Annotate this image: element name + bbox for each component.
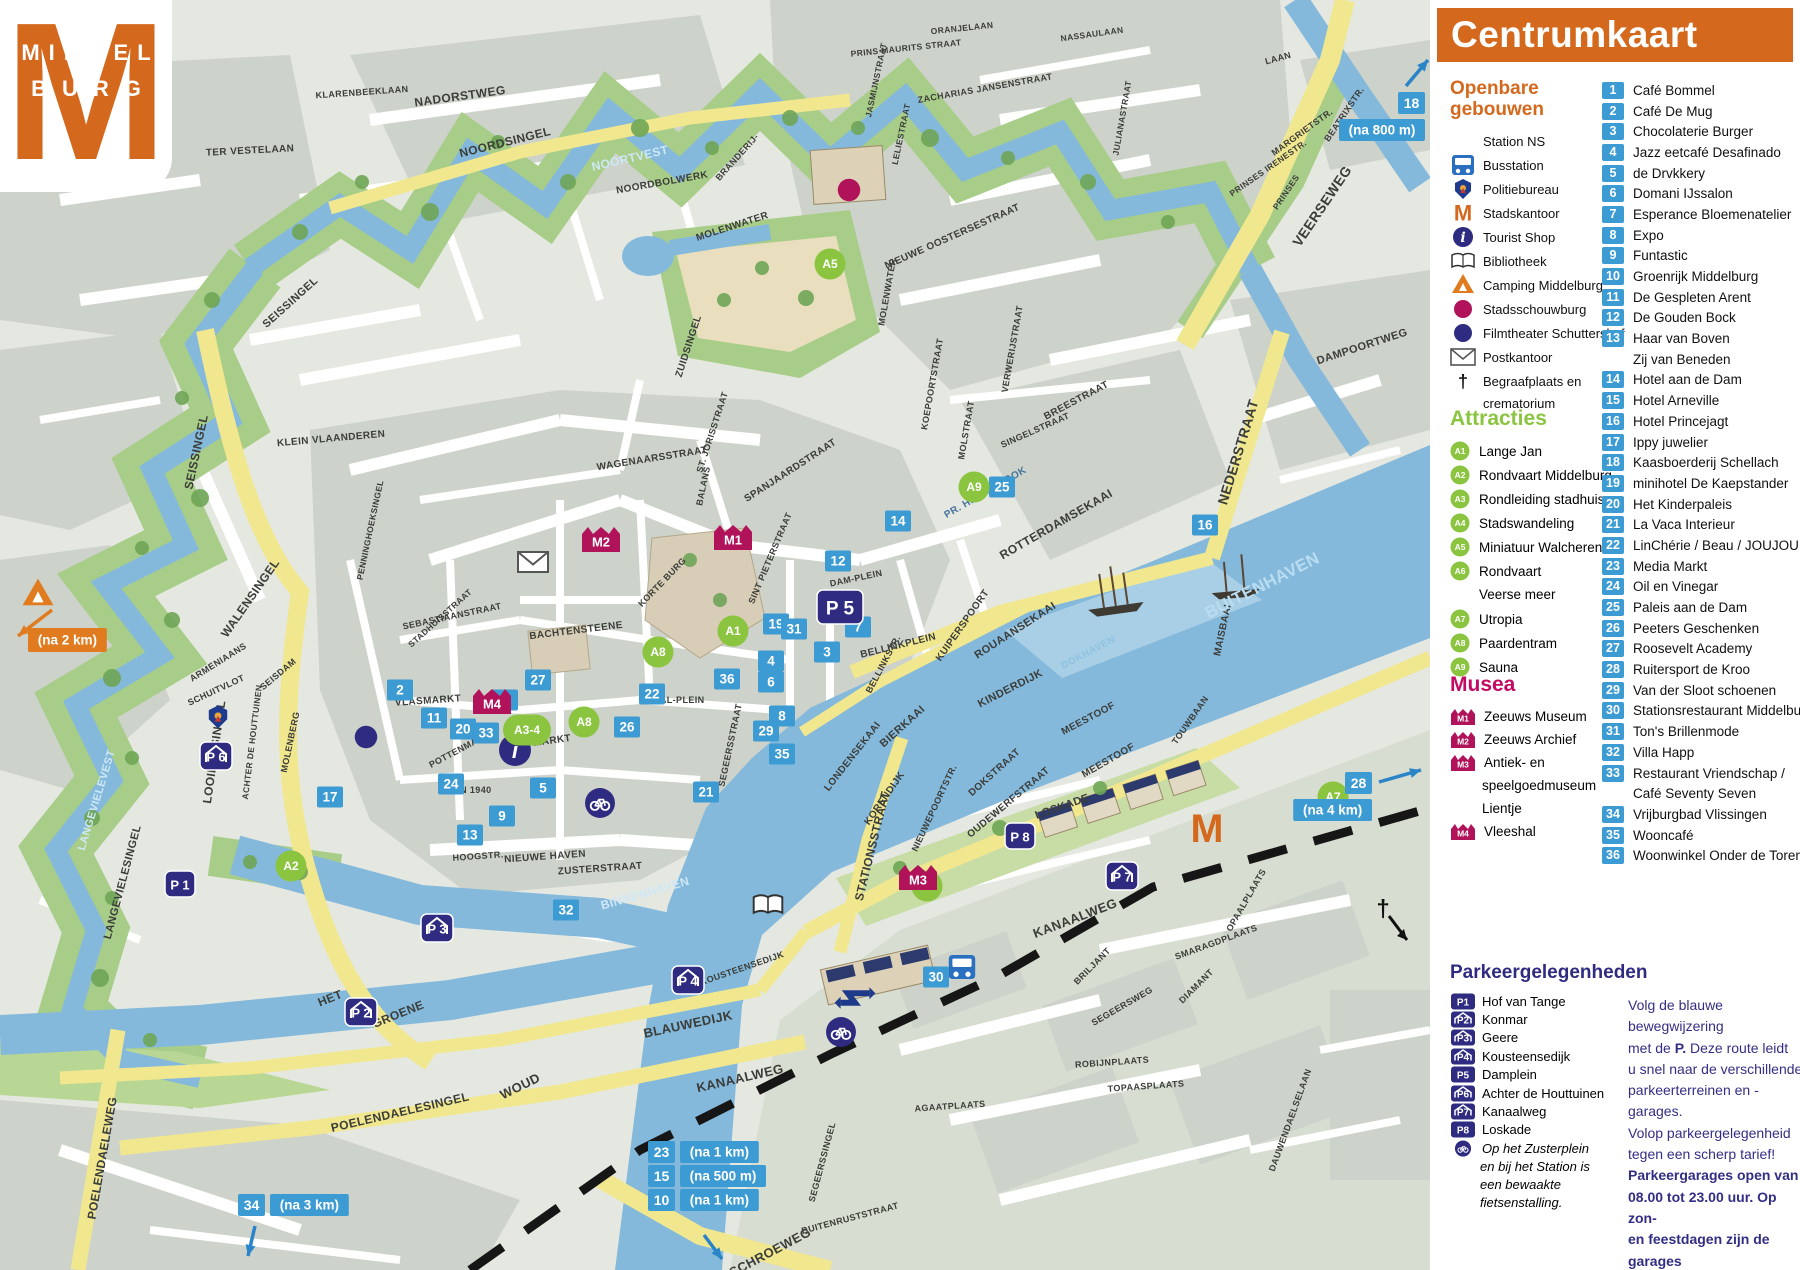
svg-text:A8: A8 [1455, 638, 1466, 648]
attraction-badge-icon: A1 [1450, 441, 1470, 461]
svg-text:A7: A7 [1455, 614, 1466, 624]
museum-label: Vleeshal [1484, 824, 1536, 839]
map-number-marker-29: 29 [753, 721, 779, 742]
directory-item-6: 6Domani IJssalon [1602, 183, 1800, 204]
museum-label: Zeeuws Museum [1484, 709, 1587, 724]
directory-label: Ippy juwelier [1633, 435, 1708, 450]
directory-label: Woonwinkel Onder de Toren [1633, 848, 1800, 863]
museums-list: M1Zeeuws MuseumM2Zeeuws ArchiefM3Antiek-… [1450, 705, 1596, 843]
parking-badge-icon: P7 [1450, 1103, 1476, 1120]
tourist-info-icon: i [1450, 225, 1476, 249]
map-number-marker-12: 12 [825, 551, 851, 572]
attraction-label: Lange Jan [1479, 444, 1542, 459]
museum-label: Zeeuws Archief [1484, 732, 1576, 747]
map-envelope [518, 552, 548, 572]
svg-text:35: 35 [774, 747, 790, 762]
centrumkaart-page: NADORSTWEGNOORDSINGELTER VESTELAANKLAREN… [0, 0, 1800, 1270]
museum-badge-icon: M2 [1450, 731, 1476, 749]
map-number-marker-16: 16 [1192, 515, 1218, 536]
attraction-label: Rondvaart [1479, 564, 1541, 579]
directory-number-badge: 27 [1602, 640, 1624, 657]
svg-text:12: 12 [830, 554, 845, 569]
attractions-section: Attracties A1Lange JanA2Rondvaart Middel… [1450, 408, 1612, 679]
directory-number-badge: 36 [1602, 847, 1624, 864]
parking-info-line: 08.00 tot 23.00 uur. Op zon- [1628, 1187, 1800, 1230]
museum-label: Antiek- en [1484, 755, 1545, 770]
directory-item-28: 28Ruitersport de Kroo [1602, 659, 1800, 680]
museums-section: Musea M1Zeeuws MuseumM2Zeeuws ArchiefM3A… [1450, 674, 1596, 843]
parking-info-line: Volop parkeergelegenheid [1628, 1123, 1800, 1144]
svg-text:27: 27 [530, 673, 545, 688]
directory-item-1: 1Café Bommel [1602, 80, 1800, 101]
map-attraction-marker-A3-4: A3-4 [503, 715, 551, 746]
svg-text:16: 16 [1197, 518, 1213, 533]
parking-label: Konmar [1482, 1012, 1528, 1027]
svg-text:25: 25 [994, 480, 1010, 495]
attraction-item-a6: A6Rondvaart [1450, 559, 1612, 583]
parking-label: Hof van Tange [1482, 994, 1566, 1009]
film-dot-icon [1450, 321, 1476, 345]
map-city-m: M [1191, 807, 1224, 851]
svg-text:P 2: P 2 [351, 1006, 370, 1021]
map-number-marker-20: 20 [450, 719, 476, 740]
directory-item-21: 21La Vaca Interieur [1602, 514, 1800, 535]
map-number-marker-13: 13 [457, 825, 483, 846]
svg-text:P 1: P 1 [170, 878, 189, 893]
svg-text:4: 4 [767, 654, 775, 669]
directory-number-badge: 6 [1602, 185, 1624, 202]
directory-item-3: 3Chocolaterie Burger [1602, 121, 1800, 142]
directory-item-31: 31Ton's Brillenmode [1602, 721, 1800, 742]
directory-number-badge: 34 [1602, 806, 1624, 823]
directory-item-12: 12De Gouden Bock [1602, 308, 1800, 329]
directory-number-badge: 2 [1602, 103, 1624, 120]
directory-label: De Gespleten Arent [1633, 290, 1751, 305]
directory-number-badge: 14 [1602, 371, 1624, 388]
parking-label: Damplein [1482, 1067, 1537, 1082]
svg-text:A9: A9 [1455, 662, 1466, 672]
map-title: Centrumkaart [1437, 8, 1793, 62]
directory-label: Groenrijk Middelburg [1633, 269, 1758, 284]
svg-text:31: 31 [786, 622, 802, 637]
directory-item-9: 9Funtastic [1602, 246, 1800, 267]
directory-label: Restaurant Vriendschap / [1633, 766, 1785, 781]
map-attraction-marker-A8: A8 [569, 707, 600, 738]
svg-text:A1: A1 [1455, 446, 1466, 456]
directory-item-11: 11De Gespleten Arent [1602, 287, 1800, 308]
svg-text:6: 6 [767, 675, 775, 690]
legend-label: Stadsschouwburg [1483, 302, 1586, 317]
tourist-info-icon: i [1453, 227, 1473, 247]
legend-item-police: Politiebureau [1450, 177, 1602, 201]
police-icon [1450, 177, 1476, 201]
directory-label: Kaasboerderij Schellach [1633, 455, 1779, 470]
directory-item-34: 34Vrijburgbad Vlissingen [1602, 804, 1800, 825]
svg-text:23: 23 [654, 1144, 670, 1160]
book-icon [1452, 254, 1474, 268]
map-number-marker-22: 22 [639, 684, 665, 705]
map-museum-marker-M1: M1 [714, 525, 752, 550]
svg-text:A2: A2 [1455, 470, 1466, 480]
attraction-item-a2: A2Rondvaart Middelburg [1450, 463, 1612, 487]
directory-number-badge: 26 [1602, 620, 1624, 637]
directory-label: Funtastic [1633, 248, 1688, 263]
bus-icon [1450, 153, 1476, 177]
parking-info-line: Parkeergarages open van [1628, 1165, 1800, 1186]
directory-label: Hotel Arneville [1633, 393, 1719, 408]
directory-number-badge: 7 [1602, 206, 1624, 223]
map-number-marker-9: 9 [489, 806, 515, 827]
map-number-marker-5: 5 [530, 778, 556, 799]
public-buildings-heading: Openbare gebouwen [1450, 78, 1602, 120]
map-attraction-marker-A1: A1 [718, 616, 749, 647]
map-parking-marker-P8: P 8 [1005, 823, 1035, 849]
museum-badge-icon: M3 [1450, 754, 1476, 772]
svg-text:A1: A1 [725, 624, 741, 638]
attraction-label: Miniatuur Walcheren [1479, 540, 1602, 555]
directory-label-cont: Zij van Beneden [1633, 352, 1731, 367]
map-number-marker-30: 30 [923, 967, 949, 988]
directory-label: Chocolaterie Burger [1633, 124, 1753, 139]
directory-list: 1Café Bommel2Café De Mug3Chocolaterie Bu… [1602, 80, 1800, 866]
parking-label: Kousteensedijk [1482, 1049, 1570, 1064]
parking-info-line: met de P. Deze route leidt [1628, 1038, 1800, 1059]
map-parking-marker-P2: P 2 [345, 998, 377, 1026]
parking-badge-icon: P5 [1450, 1066, 1476, 1083]
legend-label: Station NS [1483, 134, 1545, 149]
map-parking-marker-P4: P 4 [672, 966, 704, 994]
museum-badge-icon: M4 [1450, 823, 1476, 841]
directory-item-5: 5de Drvkkery [1602, 163, 1800, 184]
svg-text:34: 34 [244, 1197, 260, 1213]
svg-text:22: 22 [644, 687, 659, 702]
legend-label: Begraafplaats en [1483, 374, 1581, 389]
directory-number-badge: 19 [1602, 475, 1624, 492]
directory-number-badge: 30 [1602, 702, 1624, 719]
city-m-icon: M [1191, 807, 1224, 851]
legend-label: Postkantoor [1483, 350, 1552, 365]
svg-text:9: 9 [498, 809, 506, 824]
svg-text:A3: A3 [1455, 494, 1466, 504]
directory-label: La Vaca Interieur [1633, 517, 1735, 532]
parking-badge-icon: P6 [1450, 1085, 1476, 1102]
museum-badge-icon: M1 [1450, 708, 1476, 726]
svg-text:(na 800 m): (na 800 m) [1349, 123, 1416, 138]
svg-text:M: M [1454, 201, 1472, 225]
map-number-marker-4: 4 [758, 651, 784, 672]
map-parking-marker-P7: P 7 [1106, 862, 1138, 890]
svg-text:P5: P5 [1457, 1071, 1470, 1082]
svg-text:13: 13 [462, 828, 478, 843]
directory-item-33-cont: Café Seventy Seven [1602, 783, 1800, 804]
directory-item-36: 36Woonwinkel Onder de Toren [1602, 845, 1800, 866]
map-number-marker-17: 17 [317, 787, 343, 808]
map-book [754, 895, 783, 913]
svg-text:30: 30 [928, 970, 943, 985]
directory-item-27: 27Roosevelt Academy [1602, 639, 1800, 660]
parking-info-line: Volg de blauwe bewegwijzering [1628, 995, 1800, 1038]
svg-text:M3: M3 [1457, 759, 1469, 769]
police-icon [1455, 179, 1471, 199]
parking-info-text: Volg de blauwe bewegwijzeringmet de P. D… [1628, 995, 1800, 1270]
svg-text:M1: M1 [724, 533, 742, 548]
directory-item-22: 22LinChérie / Beau / JOUJOU [1602, 535, 1800, 556]
museum-label-cont: Lientje [1482, 797, 1596, 820]
legend-item-theater-dot: Stadsschouwburg [1450, 297, 1602, 321]
svg-text:17: 17 [322, 790, 337, 805]
map-number-marker-33: 33 [473, 723, 499, 744]
directory-item-18: 18Kaasboerderij Schellach [1602, 452, 1800, 473]
directory-item-17: 17Ippy juwelier [1602, 432, 1800, 453]
directory-number-badge: 21 [1602, 516, 1624, 533]
legend-item-grave: †Begraafplaats en [1450, 369, 1602, 393]
directory-label: Peeters Geschenken [1633, 621, 1759, 636]
svg-text:11: 11 [427, 711, 442, 726]
map-attraction-marker-A9: A9 [959, 472, 990, 503]
directory-number-badge: 8 [1602, 227, 1624, 244]
directory-item-23: 23Media Markt [1602, 556, 1800, 577]
directory-item-33: 33Restaurant Vriendschap / [1602, 763, 1800, 784]
directory-item-10: 10Groenrijk Middelburg [1602, 266, 1800, 287]
svg-text:A2: A2 [283, 859, 299, 873]
map-number-marker-6: 6 [758, 672, 784, 693]
svg-text:A6: A6 [1455, 566, 1466, 576]
envelope-icon [1451, 349, 1475, 365]
map-museum-marker-M4: M4 [473, 689, 511, 714]
svg-text:P4: P4 [1457, 1052, 1470, 1063]
svg-text:(na 3 km): (na 3 km) [280, 1198, 339, 1213]
ns-icon [1450, 129, 1476, 153]
svg-text:18: 18 [1404, 95, 1420, 111]
directory-item-13-cont: Zij van Beneden [1602, 349, 1800, 370]
museums-heading: Musea [1450, 674, 1596, 695]
map-parking-marker-P3: P 3 [421, 914, 453, 942]
directory-label: Ton's Brillenmode [1633, 724, 1739, 739]
directory-number-badge: 22 [1602, 537, 1624, 554]
theater-dot-icon [838, 179, 861, 202]
directory-number-badge: 5 [1602, 165, 1624, 182]
directory-number-badge: 11 [1602, 289, 1624, 306]
map-number-marker-24: 24 [438, 774, 464, 795]
directory-number-badge: 28 [1602, 661, 1624, 678]
directory-item-8: 8Expo [1602, 225, 1800, 246]
svg-text:P8: P8 [1457, 1126, 1470, 1137]
svg-text:A3-4: A3-4 [514, 723, 540, 737]
legend-item-book: Bibliotheek [1450, 249, 1602, 273]
directory-item-15: 15Hotel Arneville [1602, 390, 1800, 411]
directory-label: Ruitersport de Kroo [1633, 662, 1750, 677]
directory-item-29: 29Van der Sloot schoenen [1602, 680, 1800, 701]
svg-text:P 4: P 4 [678, 974, 698, 989]
envelope-icon [518, 552, 548, 572]
directory-label: Hotel Princejagt [1633, 414, 1728, 429]
attraction-item-a4: A4Stadswandeling [1450, 511, 1612, 535]
svg-text:P 6: P 6 [206, 750, 225, 765]
legend-item-envelope: Postkantoor [1450, 345, 1602, 369]
camping-icon [1450, 273, 1476, 297]
theater-dot-icon [1450, 297, 1476, 321]
attraction-badge-icon: A4 [1450, 513, 1470, 533]
directory-number-badge: 33 [1602, 765, 1624, 782]
map-number-marker-11: 11 [421, 708, 447, 729]
directory-label: De Gouden Bock [1633, 310, 1736, 325]
svg-text:33: 33 [478, 726, 494, 741]
museum-item-m2: M2Zeeuws Archief [1450, 728, 1596, 751]
attraction-badge-icon: A6 [1450, 561, 1470, 581]
map-number-marker-21: 21 [693, 782, 719, 803]
directory-label: Villa Happ [1633, 745, 1694, 760]
directory-label: Van der Sloot schoenen [1633, 683, 1776, 698]
directory-number-spacer [1602, 351, 1624, 368]
directory-number-badge: 32 [1602, 744, 1624, 761]
map-theater-dot [838, 179, 861, 202]
svg-text:14: 14 [890, 514, 906, 529]
attraction-item-a8: A8Paardentram [1450, 631, 1612, 655]
svg-text:5: 5 [539, 781, 547, 796]
directory-label: Media Markt [1633, 559, 1707, 574]
directory-number-badge: 16 [1602, 413, 1624, 430]
attractions-list: A1Lange JanA2Rondvaart MiddelburgA3Rondl… [1450, 439, 1612, 679]
legend-panel: Centrumkaart Openbare gebouwen Station N… [1430, 0, 1800, 1270]
distance-badge-23: 23(na 1 km) [648, 1141, 759, 1163]
public-buildings-list: Station NSBusstationPolitiebureauMStadsk… [1450, 129, 1602, 415]
parking-info-line: u snel naar de verschillende [1628, 1059, 1800, 1080]
svg-text:†: † [1458, 371, 1468, 391]
legend-label: Bibliotheek [1483, 254, 1547, 269]
map-number-marker-27: 27 [525, 670, 551, 691]
directory-item-2: 2Café De Mug [1602, 101, 1800, 122]
map-number-marker-31: 31 [781, 619, 807, 640]
directory-number-badge: 3 [1602, 123, 1624, 140]
directory-label: de Drvkkery [1633, 166, 1705, 181]
map-museum-marker-M2: M2 [582, 527, 620, 552]
svg-text:3: 3 [823, 645, 831, 660]
map-attraction-marker-A2: A2 [276, 851, 307, 882]
directory-label: Het Kinderpaleis [1633, 497, 1732, 512]
directory-number-badge: 1 [1602, 82, 1624, 99]
directory-number-badge: 35 [1602, 827, 1624, 844]
attraction-item-a7: A7Utropia [1450, 607, 1612, 631]
svg-text:29: 29 [758, 724, 773, 739]
directory-number-badge: 18 [1602, 454, 1624, 471]
svg-text:15: 15 [654, 1168, 670, 1184]
directory-label: Domani IJssalon [1633, 186, 1733, 201]
attraction-label: Stadswandeling [1479, 516, 1574, 531]
map-number-marker-3: 3 [814, 642, 840, 663]
svg-text:28: 28 [1351, 775, 1367, 791]
attraction-label-cont: Veerse meer [1479, 583, 1612, 607]
svg-text:P3: P3 [1457, 1034, 1470, 1045]
parking-badge-icon: P3 [1450, 1029, 1476, 1046]
attraction-label: Rondleiding stadhuis [1479, 492, 1604, 507]
book-icon [1450, 249, 1476, 273]
svg-text:26: 26 [619, 720, 635, 735]
map-number-marker-36: 36 [714, 669, 740, 690]
map-bus [949, 955, 975, 979]
directory-item-13: 13Haar van Boven [1602, 328, 1800, 349]
city-map: NADORSTWEGNOORDSINGELTER VESTELAANKLAREN… [0, 0, 1430, 1270]
directory-number-badge: 31 [1602, 723, 1624, 740]
directory-item-25: 25Paleis aan de Dam [1602, 597, 1800, 618]
map-number-marker-2: 2 [387, 680, 413, 701]
svg-text:(na 2 km): (na 2 km) [38, 633, 97, 648]
svg-text:(na 1 km): (na 1 km) [690, 1193, 749, 1208]
directory-label: Esperance Bloemenatelier [1633, 207, 1791, 222]
legend-item-ns: Station NS [1450, 129, 1602, 153]
directory-number-badge: 15 [1602, 392, 1624, 409]
directory-number-badge: 10 [1602, 268, 1624, 285]
city-m-icon: M [1454, 201, 1472, 225]
svg-text:2: 2 [396, 683, 404, 698]
attraction-item-a1: A1Lange Jan [1450, 439, 1612, 463]
legend-item-city-m: MStadskantoor [1450, 201, 1602, 225]
svg-text:A8: A8 [576, 715, 592, 729]
museum-item-m3: M3Antiek- en [1450, 751, 1596, 774]
directory-item-30: 30Stationsrestaurant Middelburg [1602, 701, 1800, 722]
bike-icon [585, 788, 615, 818]
map-parking-marker-P5: P 5 [817, 590, 863, 624]
svg-text:A4: A4 [1455, 518, 1466, 528]
svg-text:M2: M2 [592, 535, 610, 550]
bus-icon [949, 955, 975, 979]
directory-label-cont: Café Seventy Seven [1633, 786, 1756, 801]
legend-label: Tourist Shop [1483, 230, 1555, 245]
attraction-badge-icon: A5 [1450, 537, 1470, 557]
directory-number-badge: 23 [1602, 558, 1624, 575]
map-number-marker-14: 14 [885, 511, 911, 532]
svg-text:36: 36 [719, 672, 735, 687]
bike-icon [1450, 1140, 1476, 1157]
parking-badge-icon: P2 [1450, 1011, 1476, 1028]
map-attraction-marker-A5: A5 [815, 249, 846, 280]
attraction-label: Utropia [1479, 612, 1523, 627]
parking-label: Loskade [1482, 1122, 1531, 1137]
bike-icon [1455, 1140, 1471, 1156]
parking-info-line: tegen een scherp tarief! [1628, 1144, 1800, 1165]
directory-number-badge: 9 [1602, 247, 1624, 264]
svg-text:M4: M4 [1457, 828, 1469, 838]
directory-label: Oil en Vinegar [1633, 579, 1718, 594]
directory-item-24: 24Oil en Vinegar [1602, 577, 1800, 598]
map-film-dot [355, 726, 378, 749]
svg-text:24: 24 [443, 777, 459, 792]
directory-item-14: 14Hotel aan de Dam [1602, 370, 1800, 391]
map-number-marker-26: 26 [614, 717, 640, 738]
legend-label: Camping Middelburg [1483, 278, 1603, 293]
svg-text:P1: P1 [1457, 997, 1470, 1008]
svg-text:P7: P7 [1457, 1108, 1470, 1119]
legend-label: Politiebureau [1483, 182, 1559, 197]
attraction-item-a5: A5Miniatuur Walcheren [1450, 535, 1612, 559]
svg-text:M2: M2 [1457, 736, 1469, 746]
svg-text:P2: P2 [1457, 1016, 1470, 1027]
svg-text:M1: M1 [1457, 713, 1469, 723]
directory-number-spacer [1602, 785, 1624, 802]
parking-label: Geere [1482, 1030, 1518, 1045]
svg-text:(na 1 km): (na 1 km) [690, 1145, 749, 1160]
attraction-badge-icon: A3 [1450, 489, 1470, 509]
svg-text:20: 20 [455, 722, 470, 737]
directory-label: Hotel aan de Dam [1633, 372, 1742, 387]
attraction-label: Rondvaart Middelburg [1479, 468, 1612, 483]
svg-text:32: 32 [558, 903, 573, 918]
svg-text:(na 500 m): (na 500 m) [690, 1169, 757, 1184]
theater-dot-icon [1454, 300, 1472, 318]
directory-item-32: 32Villa Happ [1602, 742, 1800, 763]
directory-number-badge: 25 [1602, 599, 1624, 616]
logo-line1: MIDDEL [0, 40, 172, 66]
legend-item-camping: Camping Middelburg [1450, 273, 1602, 297]
